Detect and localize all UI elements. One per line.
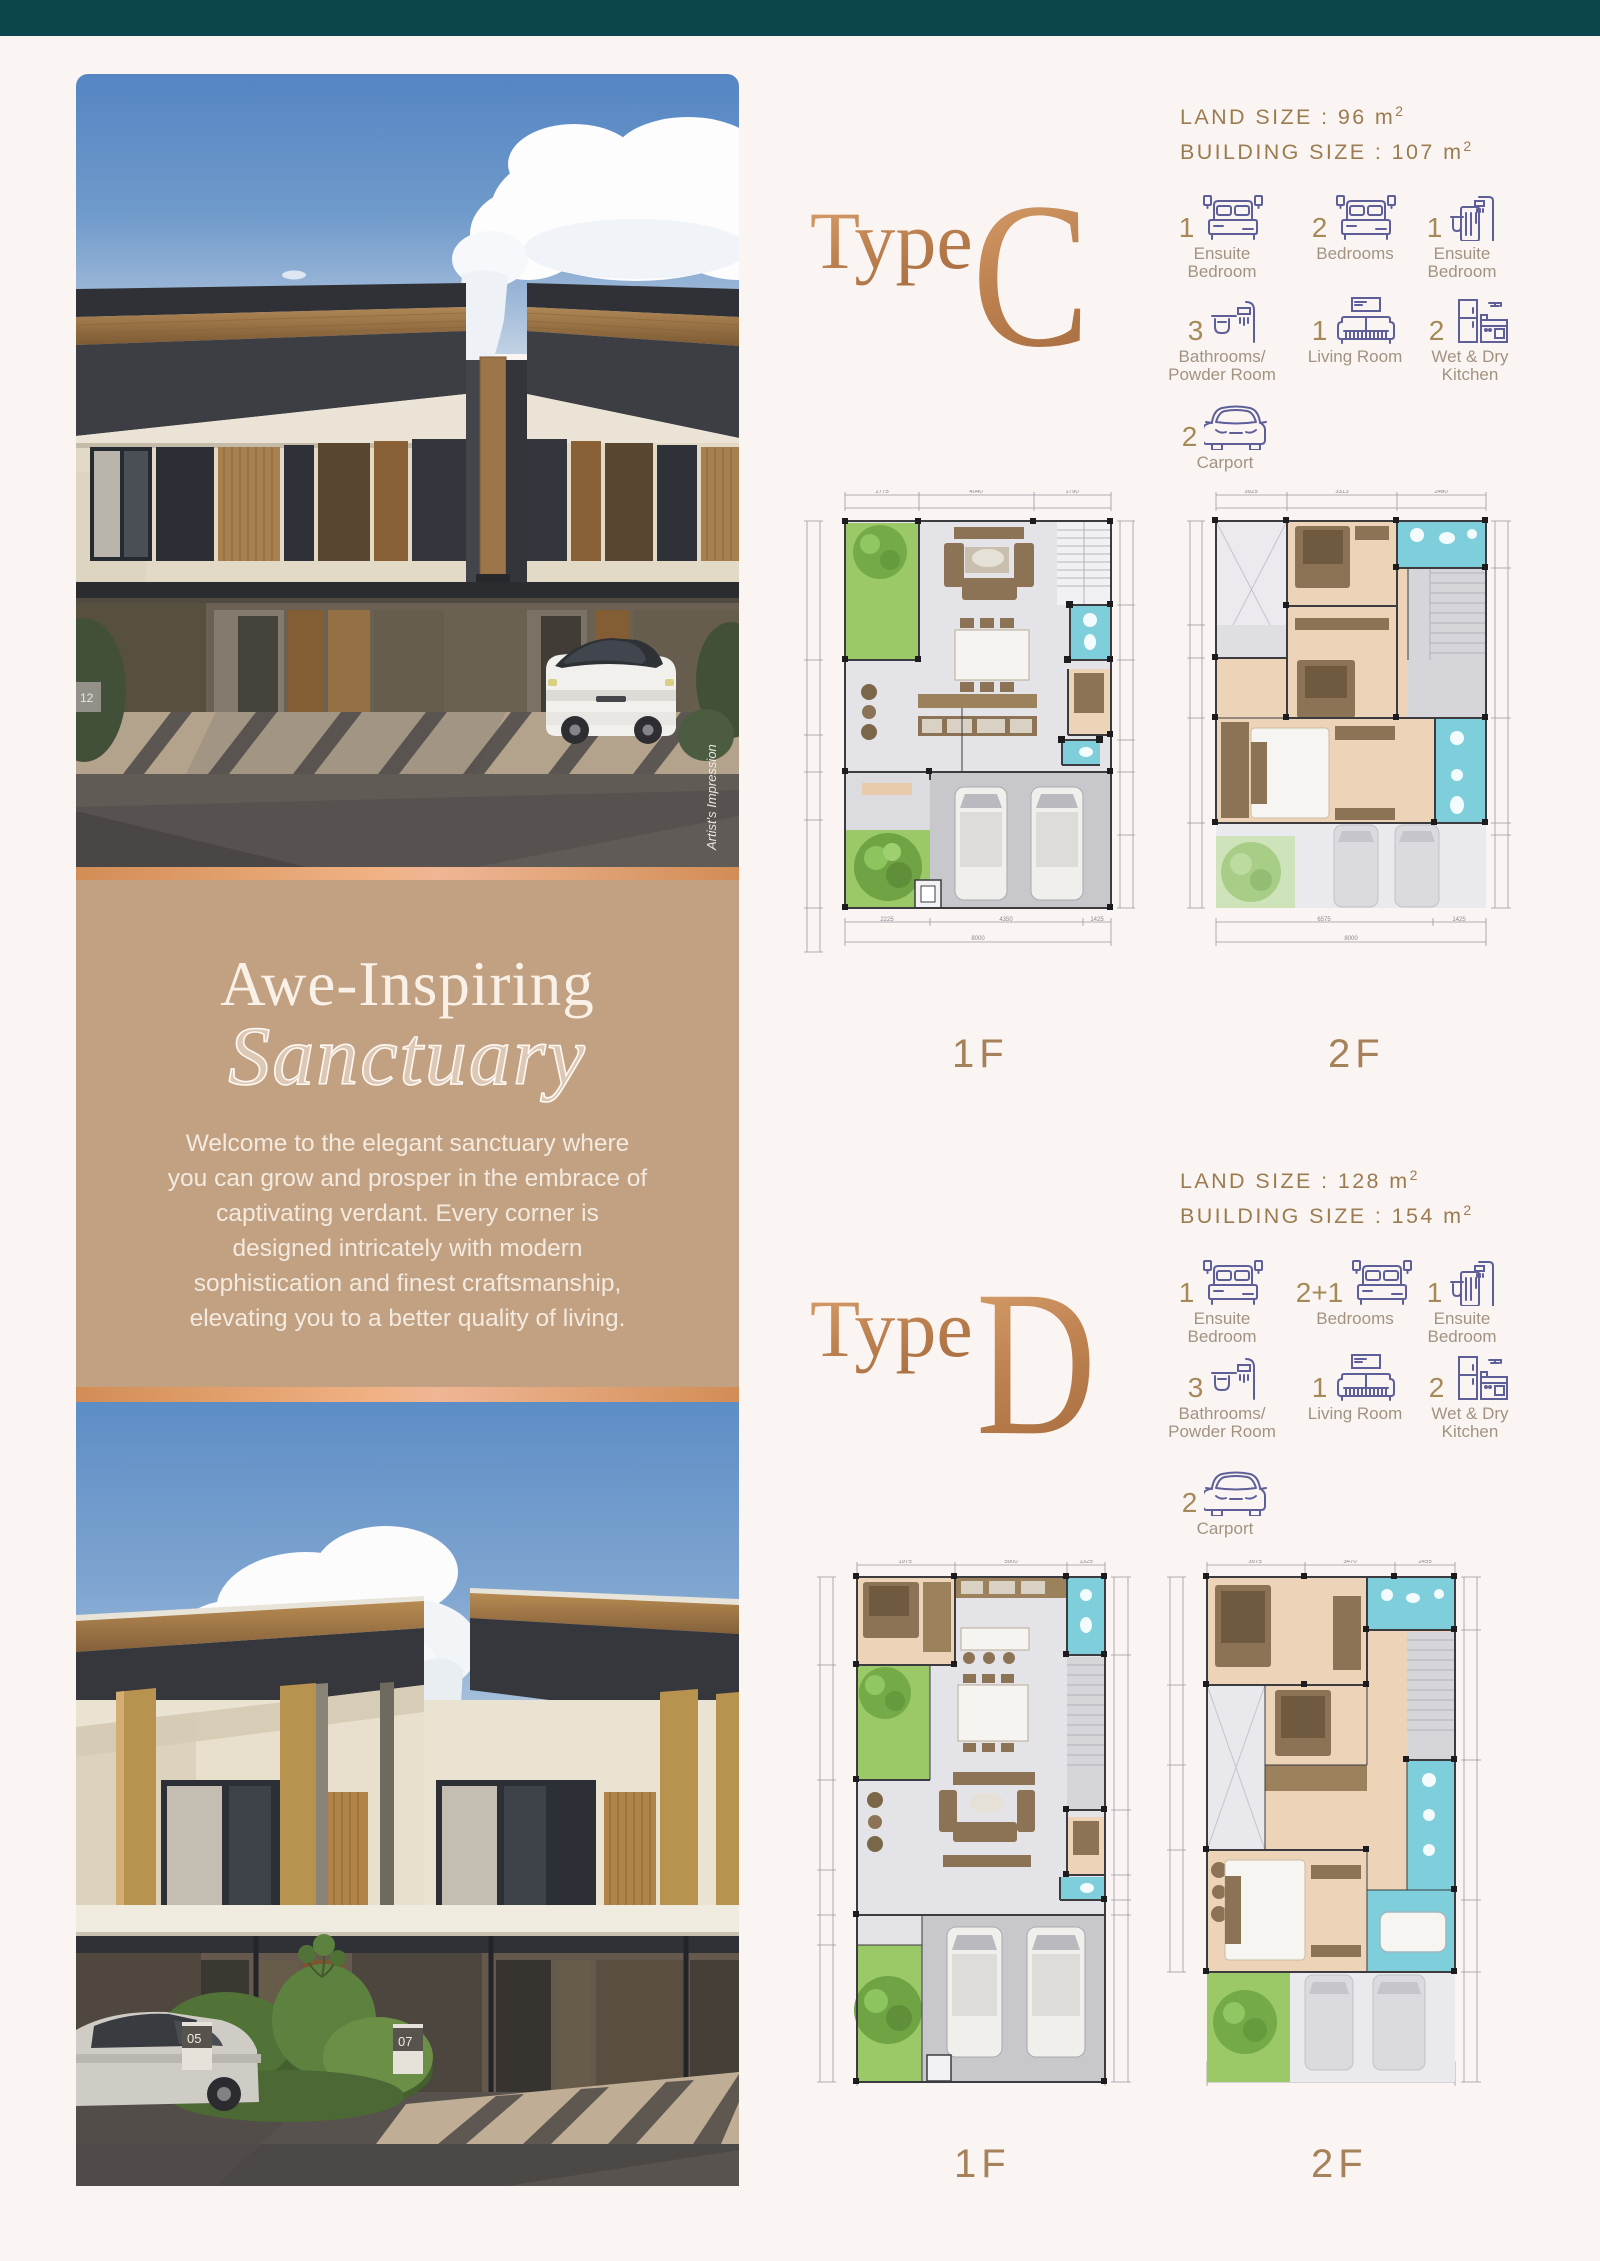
svg-text:8000: 8000 <box>1344 936 1358 942</box>
svg-text:3470: 3470 <box>1343 1560 1357 1565</box>
svg-text:2455: 2455 <box>1418 1560 1432 1565</box>
svg-text:4350: 4350 <box>999 917 1013 923</box>
svg-text:07: 07 <box>398 2034 412 2049</box>
svg-text:2775: 2775 <box>875 490 889 495</box>
svg-text:2225: 2225 <box>880 917 894 923</box>
svg-text:8000: 8000 <box>971 936 985 942</box>
svg-text:05: 05 <box>187 2031 201 2046</box>
svg-text:6575: 6575 <box>1317 917 1331 923</box>
svg-text:5900: 5900 <box>1004 1560 1018 1565</box>
svg-text:3925: 3925 <box>1244 490 1258 495</box>
svg-text:2460: 2460 <box>1434 490 1448 495</box>
svg-text:1425: 1425 <box>1090 917 1104 923</box>
svg-text:3975: 3975 <box>1248 1560 1262 1565</box>
svg-text:1425: 1425 <box>1452 917 1466 923</box>
svg-text:1975: 1975 <box>898 1560 912 1565</box>
svg-text:3313: 3313 <box>1335 490 1349 495</box>
svg-text:Artist's Impression: Artist's Impression <box>704 744 719 851</box>
svg-text:12: 12 <box>80 691 94 705</box>
svg-text:1790: 1790 <box>1065 490 1079 495</box>
svg-text:1325: 1325 <box>1079 1560 1093 1565</box>
svg-text:4040: 4040 <box>969 490 983 495</box>
